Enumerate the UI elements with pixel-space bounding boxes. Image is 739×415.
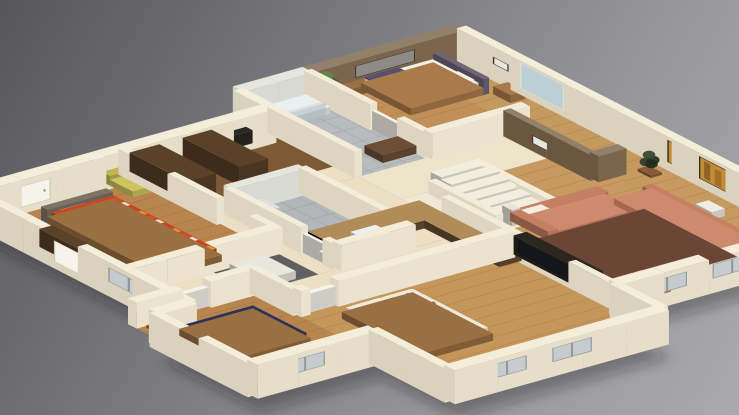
wall-red-east-n-seg1-south-face [217, 197, 224, 225]
wall-floral-north-w [293, 284, 311, 317]
wall-south-floral-seg0-west-face [444, 365, 455, 405]
window-floral-1-mullion [506, 361, 508, 375]
wall-floral-north-w-west-face [293, 287, 302, 317]
window-living-2-mullion [731, 259, 733, 273]
gold-panel-2-streak-2 [715, 169, 722, 188]
window-living-1-mullion [666, 277, 668, 291]
floorplan-scene-svg [0, 0, 739, 415]
window-navy-mullion [304, 357, 306, 371]
wall-hall-wood-stub-west-face [590, 152, 599, 182]
wall-floral-north-w-south-face [301, 289, 310, 318]
master-headboard-south-face [484, 78, 490, 96]
plant-living-dark-foliage [643, 151, 656, 160]
wall-south-navy-seg0-west-face [247, 359, 258, 399]
wall-master-south-seg0-west-face [424, 129, 433, 159]
plant-living-dark-foliage [645, 160, 658, 169]
wall-navy-north-w-west-face [128, 298, 137, 328]
wall-bath-b-south-seg0-west-face [333, 241, 342, 271]
window-floral-2-mullion [571, 343, 573, 357]
wall-closet-bath-seg1-south-face [355, 150, 362, 178]
gold-panel-2-streak-1 [704, 161, 710, 181]
floorplan-3d-render [0, 0, 739, 415]
window-west-wall-mullion [128, 278, 130, 292]
door-red-room-handle [43, 189, 46, 192]
